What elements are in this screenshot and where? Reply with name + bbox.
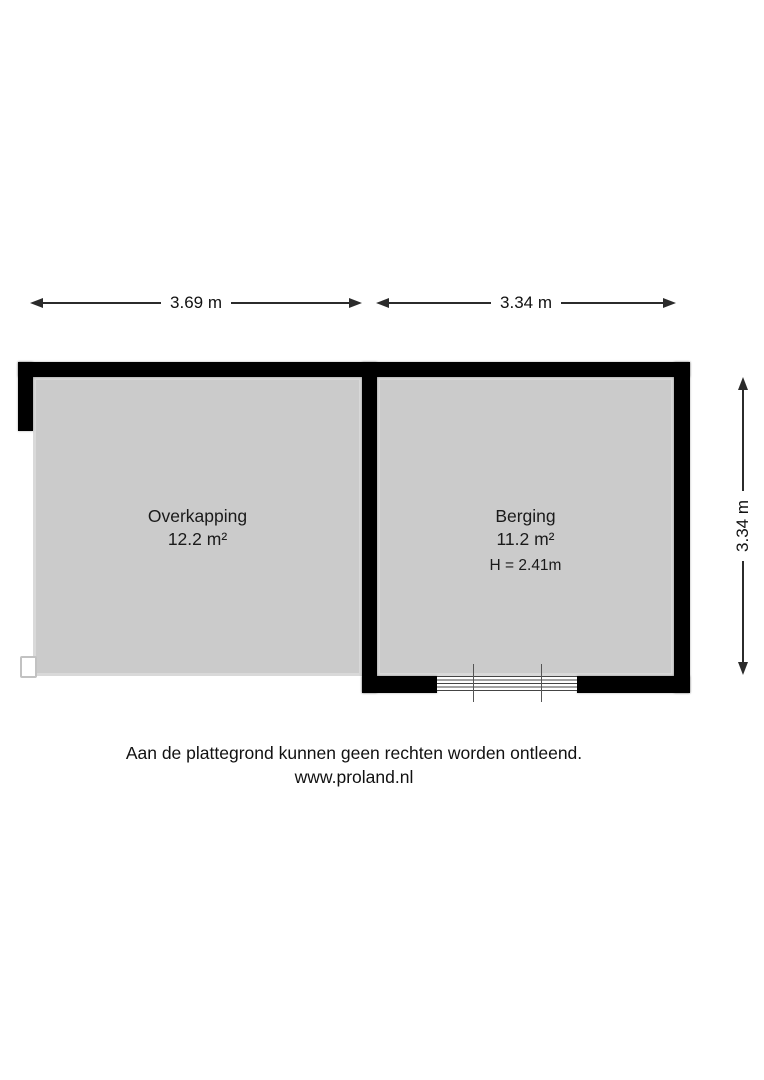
dimension-line — [742, 561, 744, 662]
dimension-line — [43, 302, 161, 304]
dimension-label: 3.34 m — [733, 491, 753, 561]
wall-divider — [362, 362, 377, 693]
wall-bottom-right-segment — [577, 676, 690, 693]
room-area: 11.2 m² — [377, 528, 674, 551]
room-name: Overkapping — [33, 505, 362, 528]
disclaimer-text: Aan de plattegrond kunnen geen rechten w… — [0, 742, 708, 766]
dimension-label: 3.34 m — [491, 293, 561, 313]
dimension-overkapping-width: 3.69 m — [30, 294, 362, 312]
wall-top — [18, 362, 690, 377]
footer: Aan de plattegrond kunnen geen rechten w… — [0, 742, 708, 789]
arrow-up-icon — [738, 377, 748, 390]
arrow-left-icon — [30, 298, 43, 308]
arrow-right-icon — [349, 298, 362, 308]
room-name: Berging — [377, 505, 674, 528]
dimension-berging-width: 3.34 m — [376, 294, 676, 312]
arrow-right-icon — [663, 298, 676, 308]
room-ceiling-height: H = 2.41m — [377, 557, 674, 575]
post-column-symbol — [20, 656, 37, 678]
dimension-line — [742, 390, 744, 491]
website-text: www.proland.nl — [0, 766, 708, 790]
window-frame-tick — [473, 664, 474, 702]
dimension-label: 3.69 m — [161, 293, 231, 313]
arrow-down-icon — [738, 662, 748, 675]
room-area: 12.2 m² — [33, 528, 362, 551]
dimension-line — [561, 302, 663, 304]
floorplan-canvas: 3.69 m 3.34 m 3.34 m Overkapping 12.2 m² — [0, 0, 764, 1080]
dimension-line — [389, 302, 491, 304]
wall-left-stub — [18, 362, 33, 431]
room-berging-label: Berging 11.2 m² — [377, 505, 674, 551]
wall-right — [674, 362, 690, 693]
dimension-berging-depth: 3.34 m — [734, 377, 752, 675]
window-frame-tick — [541, 664, 542, 702]
arrow-left-icon — [376, 298, 389, 308]
room-overkapping-label: Overkapping 12.2 m² — [33, 505, 362, 551]
window-symbol — [437, 676, 577, 691]
wall-bottom-left-segment — [362, 676, 437, 693]
dimension-line — [231, 302, 349, 304]
